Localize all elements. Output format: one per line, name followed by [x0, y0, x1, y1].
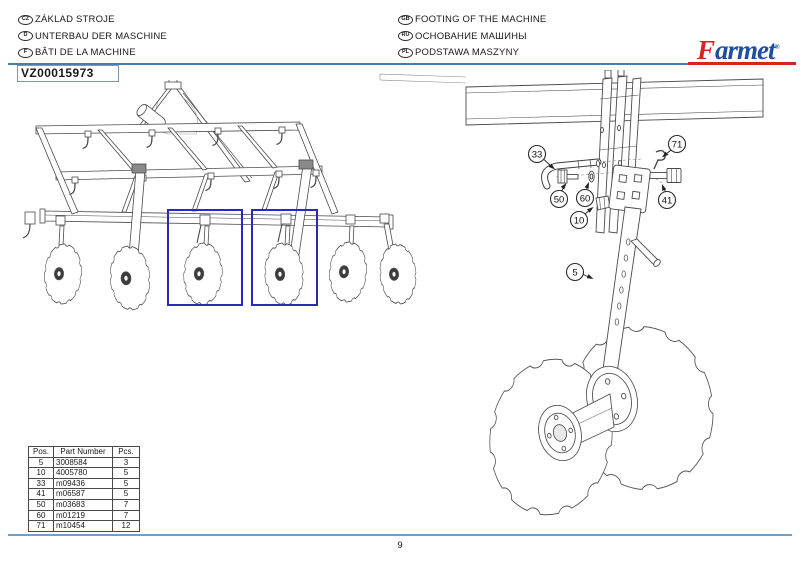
table-row: 41m065875	[29, 489, 140, 500]
table-row: 60m012197	[29, 510, 140, 521]
cell-part: m03683	[54, 499, 113, 510]
lang-code-badge: PL	[398, 48, 413, 58]
table-row: 530085843	[29, 457, 140, 468]
cell-pcs: 7	[113, 499, 140, 510]
footer-rule	[8, 534, 792, 536]
cell-pos: 5	[29, 457, 54, 468]
table-header-row: Pos. Part Number Pcs.	[29, 447, 140, 458]
cell-pcs: 7	[113, 510, 140, 521]
frame-rod	[380, 74, 466, 83]
logo-underline	[688, 62, 796, 65]
lang-row-d: D UNTERBAU DER MASCHINE	[18, 31, 167, 42]
logo-letter-f: F	[697, 35, 715, 65]
lang-row-gb: GB FOOTING OF THE MACHINE	[398, 14, 546, 25]
farmet-logo: Farmet®	[697, 34, 797, 64]
adjustment-plate	[609, 165, 651, 213]
cell-pos: 33	[29, 478, 54, 489]
callout-label: 41	[662, 195, 673, 206]
lang-code-badge: CZ	[18, 15, 33, 25]
lang-label: UNTERBAU DER MASCHINE	[35, 31, 167, 42]
machine-overview-diagram	[0, 80, 420, 340]
disc-blades	[42, 241, 418, 312]
cell-part: m09436	[54, 478, 113, 489]
lang-code-badge: F	[18, 48, 33, 58]
table-row: 33m094365	[29, 478, 140, 489]
lang-row-pl: PL PODSTAWA MASZYNY	[398, 47, 546, 58]
lang-label: FOOTING OF THE MACHINE	[415, 14, 546, 25]
cell-part: m01219	[54, 510, 113, 521]
cell-part: 3008584	[54, 457, 113, 468]
part-bolt-50	[558, 170, 578, 183]
callout-label: 10	[574, 215, 585, 226]
cell-pos: 50	[29, 499, 54, 510]
cell-pcs: 5	[113, 478, 140, 489]
lang-row-f: F BÂTI DE LA MACHINE	[18, 47, 167, 58]
col-header-pos: Pos.	[29, 447, 54, 458]
header-labels-left: CZ ZÁKLAD STROJE D UNTERBAU DER MASCHINE…	[18, 14, 167, 58]
cell-pcs: 5	[113, 489, 140, 500]
page-number: 9	[0, 540, 800, 551]
front-beam	[44, 211, 390, 227]
cell-pos: 71	[29, 521, 54, 532]
lang-label: BÂTI DE LA MACHINE	[35, 47, 136, 58]
callout-label: 5	[572, 267, 577, 278]
cell-pcs: 5	[113, 468, 140, 479]
main-beam	[466, 79, 763, 125]
table-row: 71m1045412	[29, 521, 140, 532]
callout-label: 71	[672, 139, 683, 150]
table-row: 50m036837	[29, 499, 140, 510]
callout-label: 50	[554, 194, 565, 205]
cell-pos: 60	[29, 510, 54, 521]
cell-part: 4005780	[54, 468, 113, 479]
header-labels-right: GB FOOTING OF THE MACHINE RU ОСНОВАНИЕ М…	[398, 14, 546, 58]
callout-label: 33	[532, 149, 543, 160]
lang-label: ОСНОВАНИЕ МАШИНЫ	[415, 31, 527, 42]
lang-label: PODSTAWA MASZYNY	[415, 47, 519, 58]
cell-pcs: 3	[113, 457, 140, 468]
registered-mark: ®	[775, 43, 780, 51]
callout-label: 60	[580, 193, 591, 204]
col-header-pcs: Pcs.	[113, 447, 140, 458]
cell-pcs: 12	[113, 521, 140, 532]
cell-part: m10454	[54, 521, 113, 532]
disc-arm-detail-diagram: 33 50 60 10 71 41 5	[370, 70, 800, 540]
frame	[23, 80, 393, 238]
table-row: 1040057805	[29, 468, 140, 479]
logo-wordmark: armet	[715, 35, 775, 65]
part-block-10	[596, 196, 610, 210]
header-rule	[8, 63, 792, 65]
part-clip-71	[654, 151, 665, 169]
lang-code-badge: GB	[398, 15, 413, 25]
parts-table: Pos. Part Number Pcs. 530085843 10400578…	[28, 446, 140, 532]
lang-code-badge: D	[18, 31, 33, 41]
col-header-part: Part Number	[54, 447, 113, 458]
catalog-page: CZ ZÁKLAD STROJE D UNTERBAU DER MASCHINE…	[0, 0, 800, 566]
part-washer-60	[589, 171, 594, 182]
lang-label: ZÁKLAD STROJE	[35, 14, 115, 25]
cell-pos: 41	[29, 489, 54, 500]
lang-row-ru: RU ОСНОВАНИЕ МАШИНЫ	[398, 31, 546, 42]
cell-part: m06587	[54, 489, 113, 500]
lang-code-badge: RU	[398, 31, 413, 41]
lang-row-cz: CZ ZÁKLAD STROJE	[18, 14, 167, 25]
cell-pos: 10	[29, 468, 54, 479]
